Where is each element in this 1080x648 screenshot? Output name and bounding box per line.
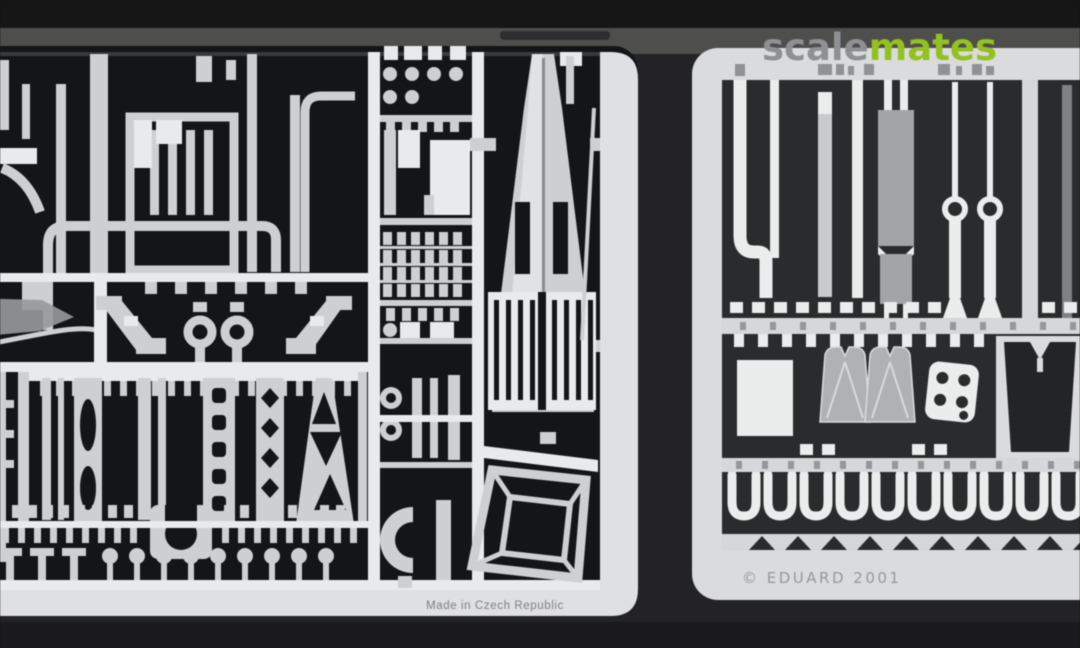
buckles-panel xyxy=(722,334,1080,458)
watermark-mates: mates xyxy=(869,26,997,69)
strap-part xyxy=(852,80,863,298)
floor-shadow xyxy=(0,622,1080,648)
panel-divider-rail xyxy=(1022,80,1038,330)
strap-part xyxy=(1062,85,1072,325)
eye-strip-part xyxy=(74,378,102,524)
watermark-scale: scale xyxy=(762,26,869,69)
mid-rail-2 xyxy=(722,458,1080,472)
wide-gray-strap-part xyxy=(878,80,914,332)
diamond-strip-part xyxy=(256,378,284,524)
strap-part xyxy=(770,80,779,258)
left-fret: Made in Czech Republic xyxy=(0,46,638,616)
hooks-row-panel xyxy=(722,472,1080,550)
made-in-caption: Made in Czech Republic xyxy=(426,600,564,612)
seat-pad-part xyxy=(820,347,870,422)
seatbelt-straps-panel xyxy=(722,80,1080,332)
t-pin-parts xyxy=(0,548,86,582)
watermark: scalemates xyxy=(762,26,997,69)
vest-part xyxy=(996,336,1080,458)
copyright-caption: © EDUARD 2001 xyxy=(742,569,901,587)
mid-rail-1 xyxy=(722,318,1080,334)
ladder-strip-part xyxy=(203,378,235,524)
backing-plate-part xyxy=(737,360,793,436)
right-fret: © EDUARD 2001 xyxy=(692,48,1080,600)
faint-embossed-mark xyxy=(500,31,610,40)
seat-pad-part xyxy=(865,347,915,422)
buckle-plate-part xyxy=(924,361,980,424)
ribbed-panel-parts xyxy=(488,292,596,410)
svg-text:scalemates: scalemates xyxy=(762,26,997,69)
photo-etched-frets-photo: Made in Czech Republic xyxy=(0,0,1080,648)
strap-part xyxy=(818,92,832,297)
